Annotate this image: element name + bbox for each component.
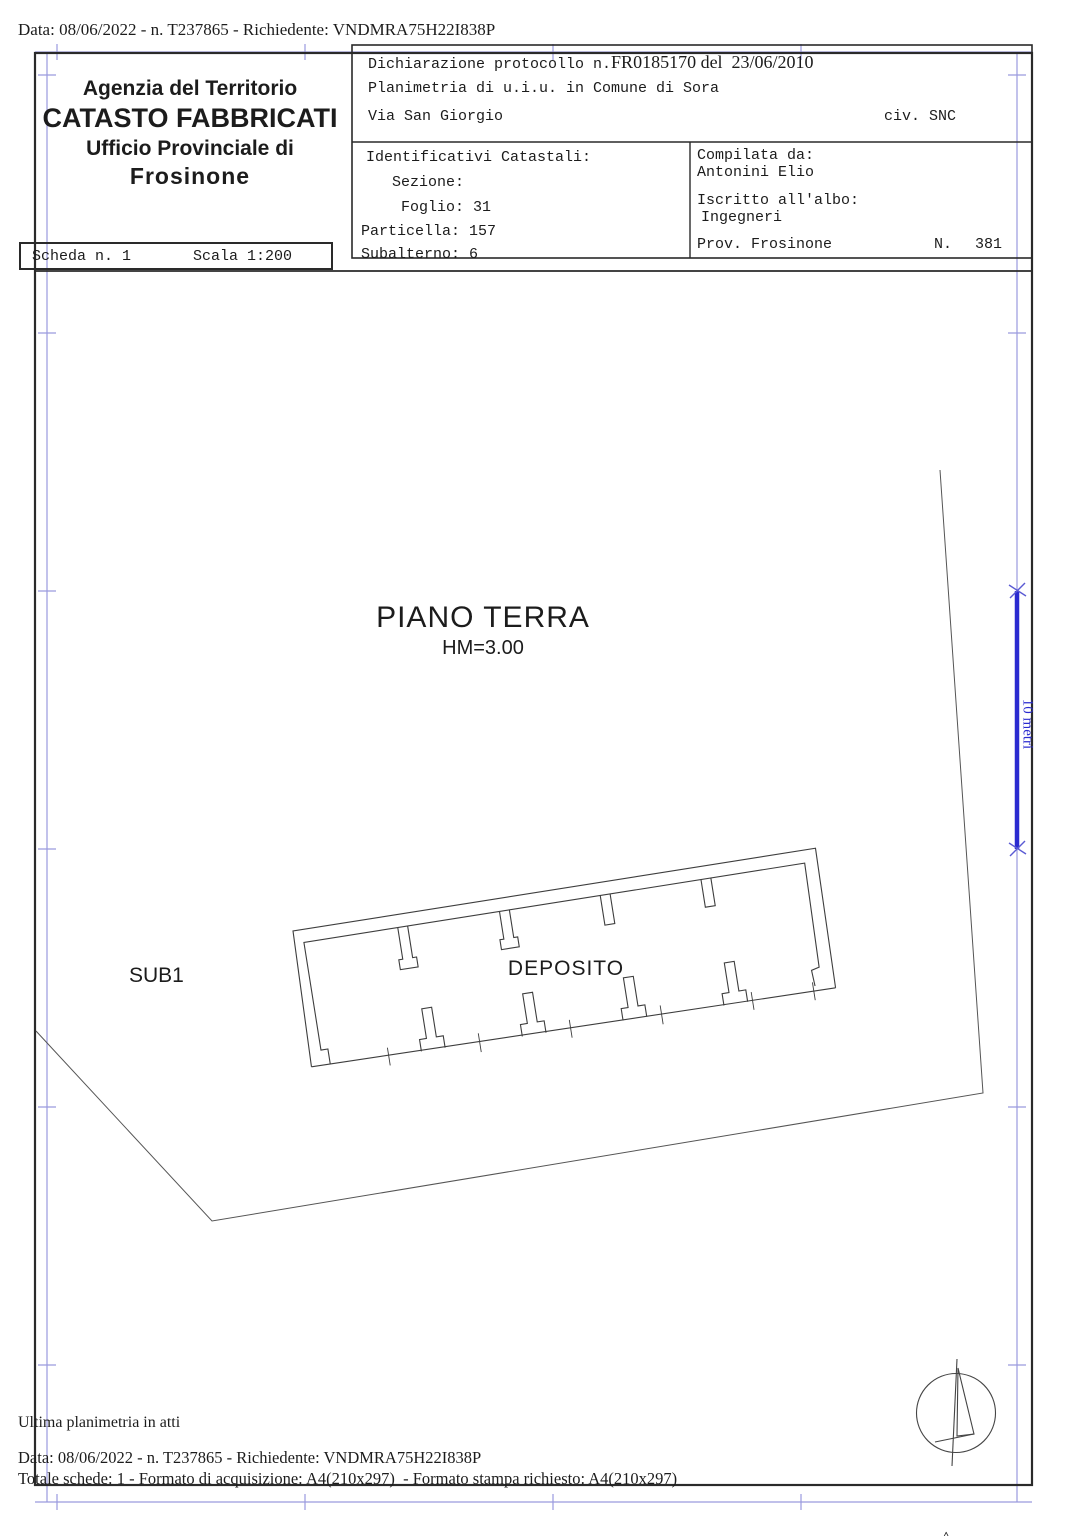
civic-number: civ. SNC <box>884 108 956 125</box>
scale-value: Scala 1:200 <box>193 248 292 265</box>
footer-totale: Totale schede: 1 - Formato di acquisizio… <box>18 1469 677 1489</box>
plan-drawing-svg <box>0 0 1086 1536</box>
building-open-side <box>311 984 835 1071</box>
identificativi-foglio: Foglio: 31 <box>401 199 491 216</box>
open-side-ticks <box>387 980 815 1067</box>
albo-value: Ingegneri <box>701 209 782 226</box>
protocol-line: Dichiarazione protocollo n.FR0185170 del… <box>368 52 814 73</box>
agency-office: Ufficio Provinciale di <box>40 136 340 162</box>
sidebar-line-1: Catasto dei Fabbricati - Situazione al 0… <box>937 1530 960 1536</box>
protocol-value: FR0185170 del 23/06/2010 <box>611 52 814 72</box>
albo-number-value: 381 <box>975 236 1002 253</box>
identificativi-subalterno: Subalterno: 6 <box>361 246 478 263</box>
cadastral-plan-page: Data: 08/06/2022 - n. T237865 - Richiede… <box>0 0 1086 1536</box>
albo-number-label: N. <box>934 236 952 253</box>
street-line: Via San Giorgio <box>368 108 503 125</box>
identificativi-sezione: Sezione: <box>392 174 464 191</box>
parcel-boundary-line <box>36 470 983 1221</box>
floor-height-label: HM=3.00 <box>442 637 524 660</box>
agency-block: Agenzia del Territorio CATASTO FABBRICAT… <box>40 76 340 191</box>
floor-title: PIANO TERRA <box>376 601 590 635</box>
page-frame <box>20 45 1032 1485</box>
province-line: Prov. Frosinone <box>697 236 832 253</box>
scale-bar-label: 10 metri <box>1019 699 1036 749</box>
blue-ruler-lines <box>35 44 1032 1510</box>
identificativi-particella: Particella: 157 <box>361 223 496 240</box>
north-arrow-compass <box>917 1359 996 1466</box>
room-label: DEPOSITO <box>508 957 624 981</box>
agency-register: CATASTO FABBRICATI <box>40 102 340 136</box>
footer-ultima: Ultima planimetria in atti <box>18 1414 180 1432</box>
agency-province: Frosinone <box>40 162 340 191</box>
sidebar-line-2: VIA SAN GIORGIO n. SNC Piano T <box>1004 1530 1027 1536</box>
albo-label: Iscritto all'albo: <box>697 192 859 209</box>
identificativi-title: Identificativi Catastali: <box>366 149 591 166</box>
footer-data: Data: 08/06/2022 - n. T237865 - Richiede… <box>18 1448 481 1468</box>
compilata-name: Antonini Elio <box>697 164 814 181</box>
protocol-label: Dichiarazione protocollo n. <box>368 56 611 73</box>
agency-name: Agenzia del Territorio <box>40 76 340 102</box>
compilata-label: Compilata da: <box>697 147 814 164</box>
scheda-number: Scheda n. 1 <box>32 248 131 265</box>
top-wall-piers <box>394 878 718 970</box>
subalterno-plan-label: SUB1 <box>129 964 184 988</box>
sidebar-rotated-text: Catasto dei Fabbricati - Situazione al 0… <box>892 1530 1073 1536</box>
planimetria-line: Planimetria di u.i.u. in Comune di Sora <box>368 80 719 97</box>
document-header-line: Data: 08/06/2022 - n. T237865 - Richiede… <box>18 20 495 40</box>
